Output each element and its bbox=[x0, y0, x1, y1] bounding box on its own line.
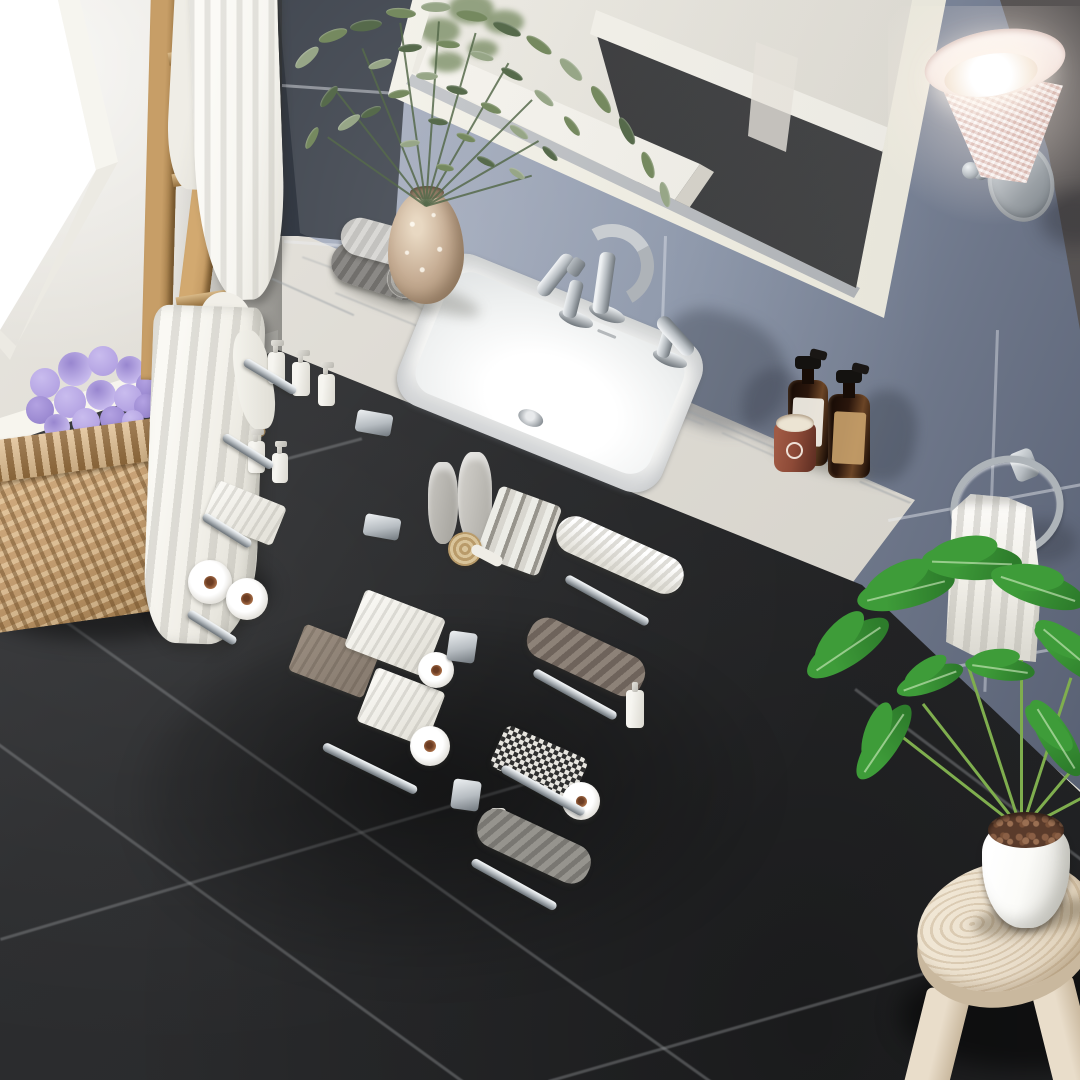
bathroom-photo bbox=[0, 0, 1080, 1080]
toilet-paper-core bbox=[241, 593, 253, 605]
candle-logo-ring bbox=[786, 442, 803, 459]
candle-cup bbox=[774, 412, 818, 474]
philodendron-stem bbox=[1020, 660, 1023, 830]
toilet-paper-core bbox=[204, 576, 217, 589]
toilet-paper-core bbox=[424, 740, 436, 752]
pot-soil-pebbles bbox=[988, 812, 1064, 848]
door-hinge bbox=[450, 778, 482, 812]
bottle-label-kraft bbox=[832, 411, 867, 465]
drawstring-bag bbox=[428, 462, 458, 544]
candle-wax bbox=[776, 414, 814, 432]
toilet-paper-core bbox=[431, 665, 442, 676]
tile-grout-line bbox=[282, 84, 404, 95]
eucalyptus-leaf bbox=[421, 2, 451, 12]
bottle-pump bbox=[632, 682, 638, 692]
hydrangea-bloom bbox=[58, 352, 92, 386]
door-hinge bbox=[446, 630, 478, 664]
hydrangea-bloom bbox=[88, 346, 118, 376]
amber-bottle bbox=[828, 356, 872, 478]
lotion-bottle bbox=[626, 690, 644, 728]
